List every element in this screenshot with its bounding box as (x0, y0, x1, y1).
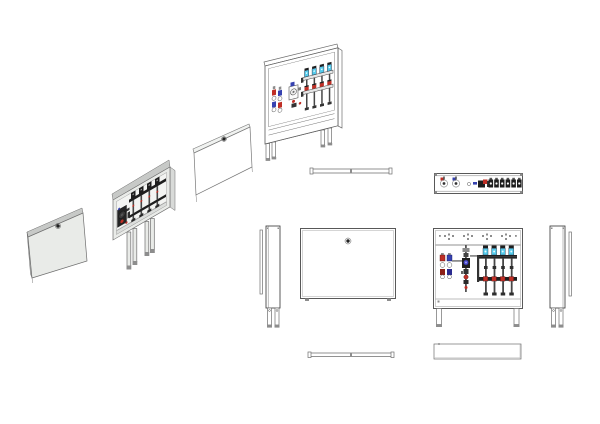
return-valve-red (509, 277, 514, 282)
end-cap-right (391, 352, 394, 358)
pump-blue-mark (473, 182, 477, 185)
door-lock (222, 137, 225, 140)
view-iso-door-shaded (16, 203, 102, 285)
return-valve-red (492, 277, 497, 282)
ball-valve-blue (278, 90, 282, 97)
view-iso-cabinet-shaded (100, 143, 196, 283)
foot-right (387, 299, 391, 302)
flow-meter (483, 246, 488, 256)
adjustable-feet (436, 309, 520, 328)
door-outline (301, 229, 396, 299)
ball-valve-blue (272, 101, 276, 108)
end-cap-left (310, 168, 313, 174)
adjustable-feet (267, 308, 280, 328)
flow-meter (492, 246, 497, 256)
view-top-with-manifold (433, 171, 525, 198)
foot-left (305, 299, 309, 302)
flow-meter (320, 64, 324, 74)
end-cap-left (308, 352, 311, 358)
flow-meter (312, 66, 316, 76)
panel-tab (438, 343, 440, 345)
center-bracket (350, 353, 352, 357)
view-side-left (254, 222, 290, 332)
ball-valve-red (440, 255, 445, 261)
flow-meter (327, 62, 331, 72)
flow-meter (500, 246, 505, 256)
drain-red-dot (465, 286, 468, 289)
ball-valve-blue (447, 255, 452, 261)
flow-meter (305, 68, 309, 78)
view-front-open (431, 224, 525, 334)
technical-drawing-canvas (0, 0, 600, 424)
view-iso-cabinet-line (260, 40, 360, 176)
cabinet-side-face (170, 167, 175, 211)
door-return-edge (196, 195, 197, 202)
view-bottom-panel (432, 340, 524, 362)
ball-valve-blue-dark (447, 269, 452, 275)
panel-outline (434, 344, 521, 359)
cabinet-side-face (338, 48, 342, 128)
pump-red-valve (464, 275, 468, 279)
return-valve-red (483, 277, 488, 282)
door-corner-line (32, 278, 33, 283)
end-cap-right (389, 168, 392, 174)
door-lock-pin (346, 239, 349, 242)
door-edge-profile (260, 230, 262, 294)
ball-valve-red (272, 89, 276, 96)
return-valve-red (500, 277, 505, 282)
adjustable-feet (551, 308, 564, 328)
cabinet-side-profile (550, 226, 565, 308)
view-side-right (546, 222, 576, 332)
flow-meter (509, 246, 514, 256)
view-top-empty (308, 163, 394, 179)
view-front-closed (298, 224, 400, 308)
door-lock (56, 224, 60, 228)
center-bracket (350, 169, 352, 173)
ball-valve-red (278, 102, 282, 109)
view-bottom-strip (306, 347, 396, 361)
view-iso-door-line (186, 116, 266, 208)
door-edge-profile (569, 232, 571, 296)
ball-valve-red-dark (440, 269, 445, 275)
